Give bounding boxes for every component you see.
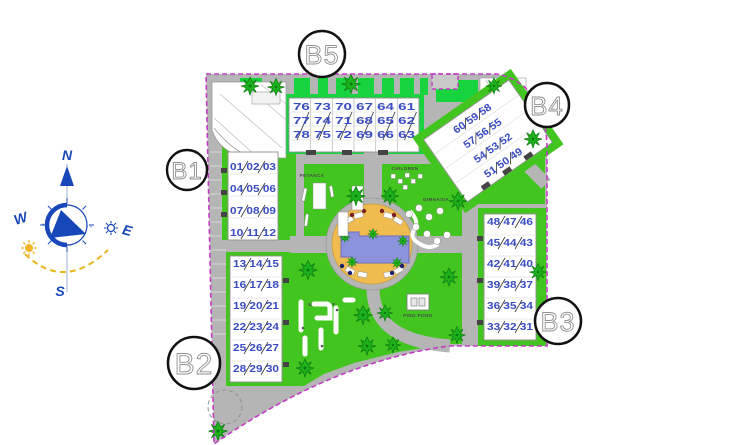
b3-units-row4: 39 38 37 xyxy=(487,279,533,291)
b4-label: B4 xyxy=(530,91,564,121)
compass-w: W xyxy=(12,208,31,228)
b1-units-row4: 10 11 12 xyxy=(230,227,276,239)
b2-units-row4: 22 23 24 xyxy=(233,321,279,333)
building-b5: 76 73 70 67 64 61 77 74 71 68 65 62 78 7… xyxy=(289,98,419,155)
building-b2: 13 14 15 16 17 18 19 20 21 22 23 24 25 2… xyxy=(230,256,289,382)
b2-units-row6: 28 29 30 xyxy=(233,363,279,375)
b1-label: B1 xyxy=(171,158,202,185)
compass-e: E xyxy=(121,221,135,239)
b2-units-row5: 25 26 27 xyxy=(233,342,279,354)
block-label-b1: B1 xyxy=(167,150,207,190)
block-label-b4: B4 xyxy=(525,83,569,127)
compass-rose: N W E S xyxy=(12,147,135,299)
b2-units-row2: 16 17 18 xyxy=(233,279,279,291)
building-b1: 01 02 03 04 05 06 07 08 09 10 11 12 xyxy=(221,152,278,240)
b2-units-row1: 13 14 15 xyxy=(233,258,279,270)
north-arrow xyxy=(60,166,74,186)
pingpong-area: PING PONG xyxy=(403,294,433,318)
b5-units-row2: 77 74 71 68 65 62 xyxy=(293,115,415,127)
b1-units-row1: 01 02 03 xyxy=(230,161,276,173)
compass-s: S xyxy=(55,283,65,299)
block-label-b2: B2 xyxy=(168,337,220,389)
b2-units-row3: 19 20 21 xyxy=(233,300,279,312)
pingpong-label: PING PONG xyxy=(403,313,433,318)
compass-n: N xyxy=(62,147,73,163)
block-label-b5: B5 xyxy=(299,31,345,77)
b5-units-row1: 76 73 70 67 64 61 xyxy=(293,101,415,113)
site-plan-canvas: 76 73 70 67 64 61 77 74 71 68 65 62 78 7… xyxy=(0,0,740,445)
b3-units-row1: 48 47 46 xyxy=(487,216,533,228)
b3-units-row2: 45 44 43 xyxy=(487,237,533,249)
sun-icon-blue xyxy=(104,221,118,235)
building-b3: 48 47 46 45 44 43 42 41 40 39 38 37 36 3… xyxy=(477,214,536,340)
b3-units-row5: 36 35 34 xyxy=(487,300,533,312)
petanca-label: PETANCA xyxy=(300,173,325,178)
b3-units-row3: 42 41 40 xyxy=(487,258,533,270)
b3-units-row6: 33 32 31 xyxy=(487,321,533,333)
entrance-gate xyxy=(432,74,458,89)
b5-units-row3: 78 75 72 69 66 63 xyxy=(293,129,415,141)
site-plan-page: 76 73 70 67 64 61 77 74 71 68 65 62 78 7… xyxy=(0,0,740,445)
b1-units-row3: 07 08 09 xyxy=(230,205,276,217)
sun-icon-yellow xyxy=(21,240,37,256)
b1-units-row2: 04 05 06 xyxy=(230,183,276,195)
b2-label: B2 xyxy=(175,348,214,381)
b3-label: B3 xyxy=(540,307,575,337)
gym-label: GIMNASIA xyxy=(423,197,449,202)
children-label: CHILDREN xyxy=(392,166,419,171)
entrance-area xyxy=(212,82,286,158)
block-label-b3: B3 xyxy=(535,298,581,344)
b5-label: B5 xyxy=(304,40,339,70)
